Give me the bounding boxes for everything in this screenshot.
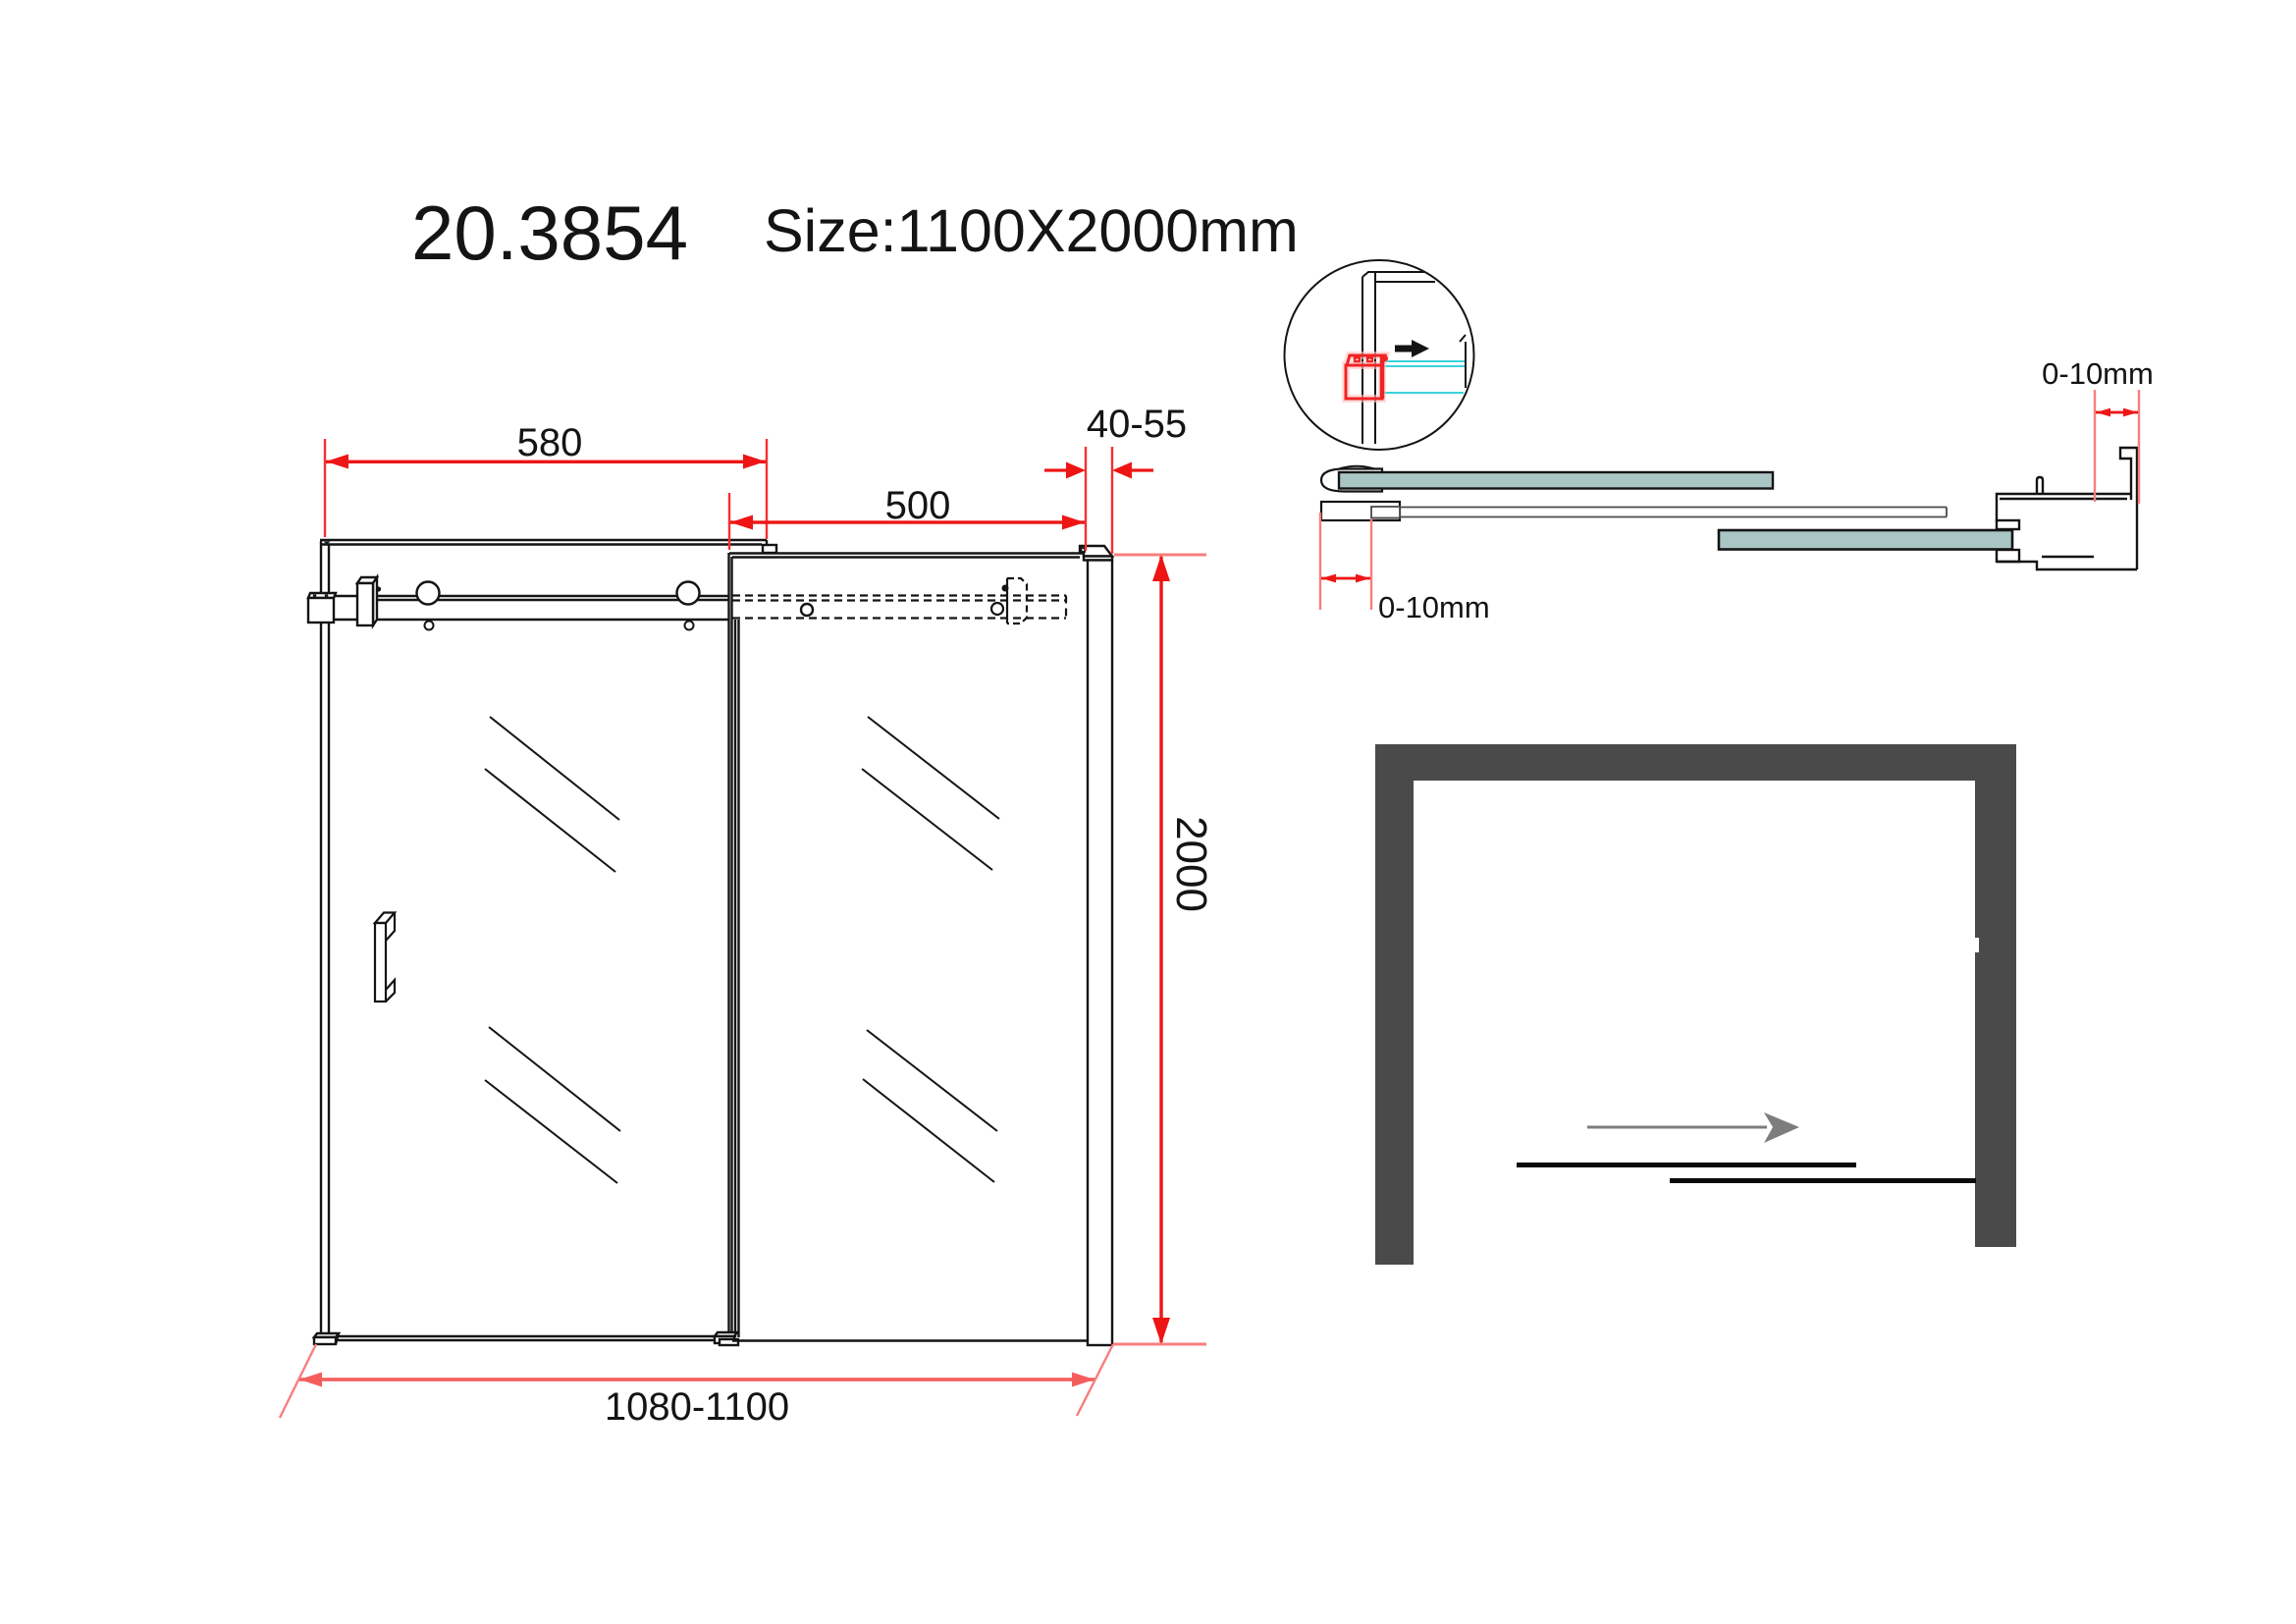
svg-text:40-55: 40-55	[1087, 403, 1187, 446]
svg-text:500: 500	[885, 484, 951, 527]
svg-text:Size:1100X2000mm: Size:1100X2000mm	[764, 197, 1299, 264]
svg-text:0-10mm: 0-10mm	[2042, 356, 2154, 391]
svg-text:2000: 2000	[1167, 816, 1215, 912]
svg-text:1080-1100: 1080-1100	[605, 1385, 789, 1429]
svg-text:0-10mm: 0-10mm	[1378, 590, 1490, 624]
svg-text:580: 580	[517, 421, 583, 464]
svg-text:20.3854: 20.3854	[411, 189, 688, 276]
